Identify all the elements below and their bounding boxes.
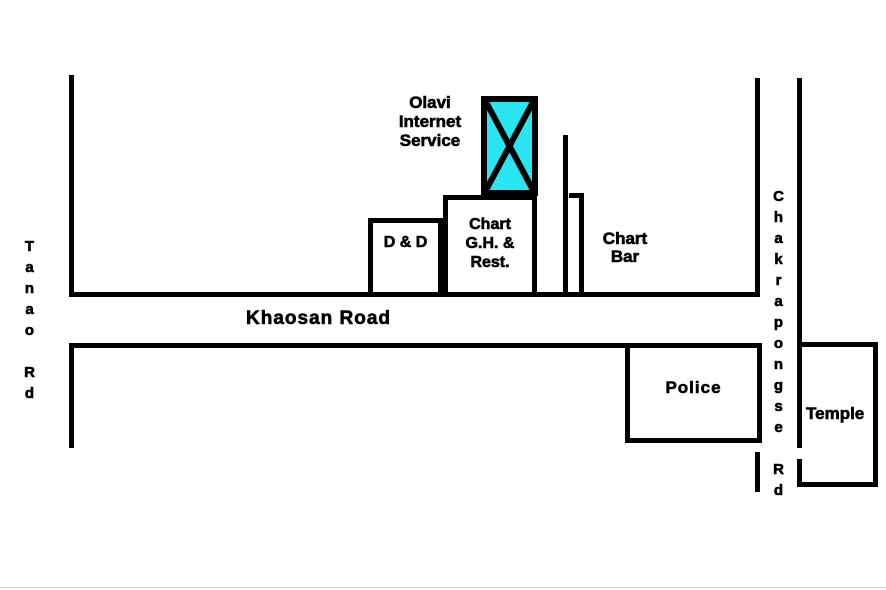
olavi-label-line1: Olavi: [381, 93, 479, 112]
olavi-label-line2: Internet: [381, 112, 479, 131]
temple-left-edge-gap: [797, 448, 802, 459]
chakrapongse-road-east-line: [797, 78, 802, 342]
tanao-road-line-upper: [69, 75, 74, 297]
chart-guesthouse-label: Chart G.H. & Rest.: [446, 215, 534, 272]
chart-bar-line-long: [563, 135, 568, 293]
chart-guesthouse-label-line1: Chart: [446, 215, 534, 234]
khaosan-area-map: Olavi Internet Service D & D Chart G.H. …: [0, 0, 886, 590]
chart-guesthouse-label-line3: Rest.: [446, 253, 534, 272]
tanao-road-label: Tanao Rd: [22, 238, 37, 406]
chakrapongse-road-west-line-lower: [755, 452, 760, 492]
chart-guesthouse-label-line2: G.H. &: [446, 234, 534, 253]
temple-label: Temple: [806, 404, 864, 424]
scan-edge-line: [0, 587, 886, 588]
chart-bar-label-line1: Chart: [591, 230, 659, 248]
khaosan-road-label: Khaosan Road: [246, 308, 391, 330]
chakrapongse-road-west-line: [755, 78, 760, 297]
olavi-label: Olavi Internet Service: [381, 93, 479, 150]
chart-bar-hook-vertical: [579, 193, 584, 293]
chart-bar-label-line2: Bar: [591, 248, 659, 266]
chakrapongse-road-label: Chakrapongse Rd: [771, 188, 786, 503]
dd-label: D & D: [368, 234, 443, 252]
olavi-label-line3: Service: [381, 131, 479, 150]
police-label: Police: [625, 378, 762, 398]
chart-bar-label: Chart Bar: [591, 230, 659, 266]
olavi-highlight-box: [481, 96, 538, 196]
dd-building-outline: [368, 218, 443, 297]
tanao-road-line-lower: [69, 343, 74, 448]
